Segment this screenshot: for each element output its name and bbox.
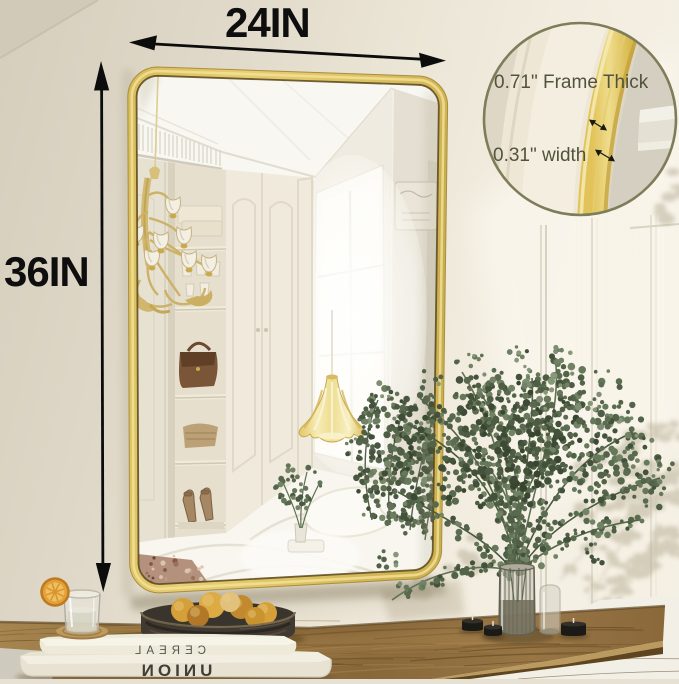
- svg-text:36IN: 36IN: [4, 248, 89, 295]
- svg-text:0.31" width: 0.31" width: [493, 145, 586, 166]
- svg-text:UNION: UNION: [138, 661, 213, 679]
- svg-text:0.71" Frame Thick: 0.71" Frame Thick: [494, 72, 649, 93]
- svg-text:24IN: 24IN: [225, 0, 310, 46]
- svg-text:CEREAL: CEREAL: [130, 645, 206, 657]
